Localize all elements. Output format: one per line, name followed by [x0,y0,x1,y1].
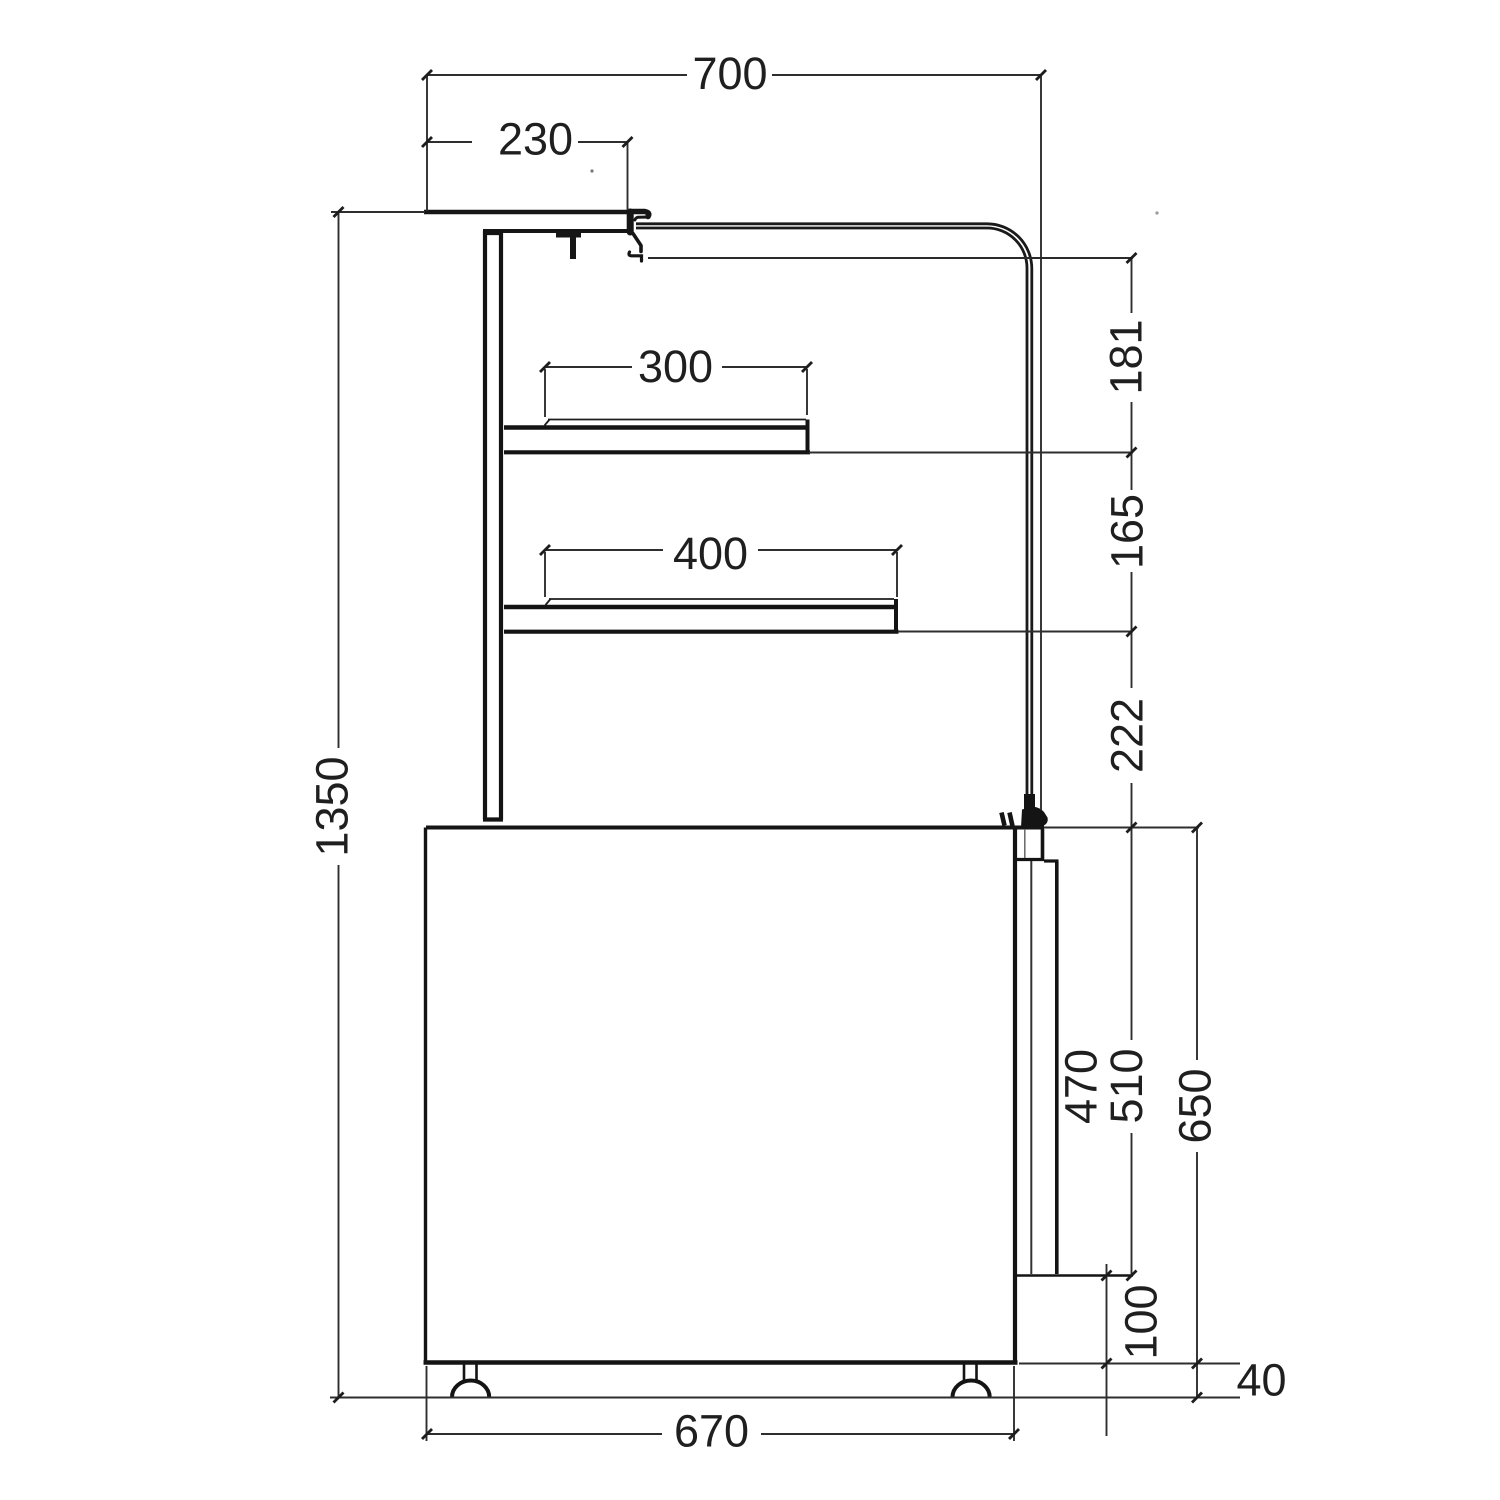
svg-text:181: 181 [1101,319,1152,394]
svg-text:100: 100 [1116,1284,1167,1359]
svg-text:510: 510 [1101,1048,1152,1123]
svg-text:1350: 1350 [307,756,358,856]
svg-text:670: 670 [674,1406,749,1457]
svg-text:470: 470 [1056,1049,1107,1124]
svg-text:222: 222 [1102,698,1153,773]
svg-text:300: 300 [638,341,713,392]
svg-text:165: 165 [1101,494,1152,569]
svg-text:700: 700 [692,48,767,99]
svg-text:230: 230 [498,114,573,165]
svg-text:400: 400 [673,528,748,579]
svg-text:650: 650 [1170,1068,1221,1143]
svg-text:40: 40 [1236,1355,1286,1406]
